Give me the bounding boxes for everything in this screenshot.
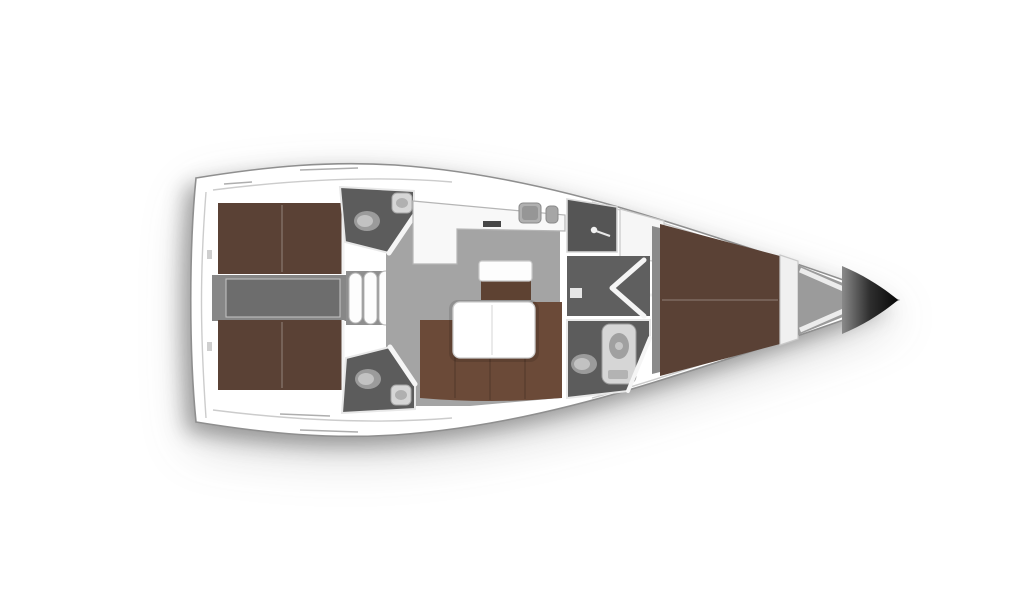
galley-sink-small xyxy=(546,206,558,223)
companionway-step-1 xyxy=(349,273,362,323)
salon-table xyxy=(453,302,535,358)
aft-port-head-sink-bowl xyxy=(396,198,408,208)
bow-shelf xyxy=(780,255,798,345)
bow-section xyxy=(798,265,898,335)
corridor-threshold xyxy=(570,288,582,298)
transom-cleat-bottom xyxy=(207,342,212,351)
aft-starboard-head-sink-bowl xyxy=(395,390,407,400)
galley-sink-large-basin xyxy=(522,206,538,220)
forward-cabin xyxy=(652,224,798,376)
companionway-step-2 xyxy=(364,272,377,324)
forward-head-shower-grate xyxy=(608,370,628,379)
forward-head-shower-drain xyxy=(615,342,623,350)
salon-bench-cushion xyxy=(479,261,532,281)
aft-port-head-toilet-seat xyxy=(357,215,373,227)
bow-tip xyxy=(842,266,898,334)
boat-plan-canvas xyxy=(0,0,1024,600)
aft-port-cabin-berth xyxy=(218,203,342,274)
galley-cooktop xyxy=(483,221,501,227)
yacht-floorplan-image xyxy=(0,0,1024,600)
engine-compartment-inner xyxy=(226,279,340,317)
aft-starboard-cabin-berth xyxy=(218,320,342,390)
aft-starboard-head-toilet-seat xyxy=(358,373,374,385)
wardrobe xyxy=(567,199,617,252)
salon-bench-base xyxy=(481,279,531,300)
forward-head-toilet-seat xyxy=(574,358,590,370)
transom-cleat-top xyxy=(207,250,212,259)
wardrobe-door-handle xyxy=(591,227,597,233)
